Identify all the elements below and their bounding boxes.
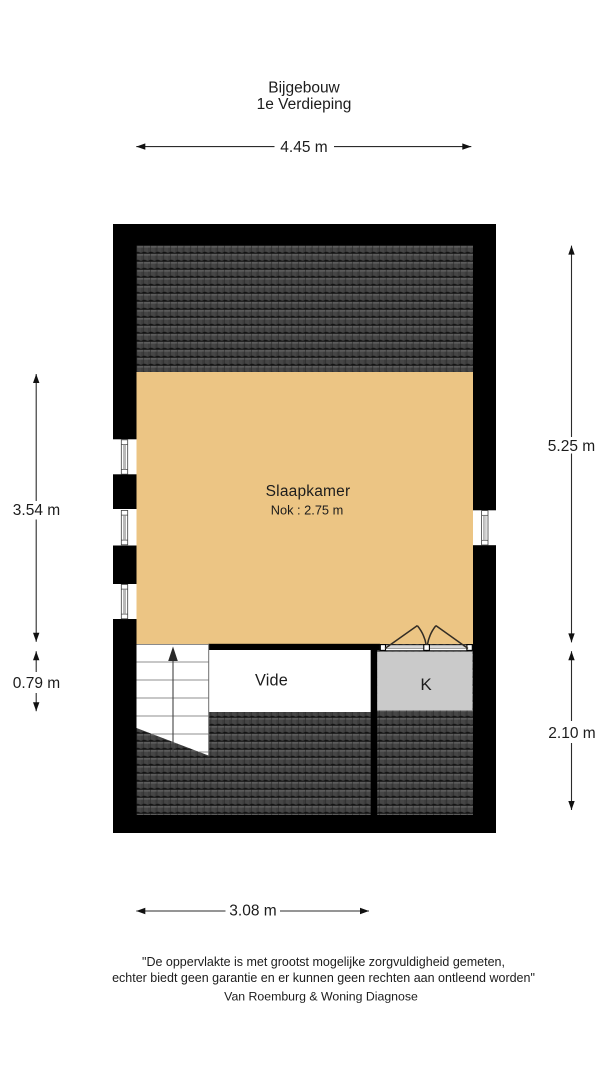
svg-text:echter biedt geen garantie en: echter biedt geen garantie en er kunnen …	[112, 971, 535, 985]
svg-text:2.10 m: 2.10 m	[548, 725, 595, 742]
svg-text:0.79 m: 0.79 m	[13, 675, 60, 692]
svg-text:Slaapkamer: Slaapkamer	[266, 483, 351, 500]
svg-text:Van Roemburg & Woning Diagnose: Van Roemburg & Woning Diagnose	[224, 990, 418, 1004]
svg-text:3.08 m: 3.08 m	[229, 903, 276, 920]
svg-text:3.54 m: 3.54 m	[13, 502, 60, 519]
svg-text:Vide: Vide	[255, 672, 288, 690]
svg-text:K: K	[420, 675, 432, 694]
svg-text:1e Verdieping: 1e Verdieping	[257, 96, 352, 113]
svg-text:"De oppervlakte is met grootst: "De oppervlakte is met grootst mogelijke…	[142, 955, 505, 969]
svg-text:5.25 m: 5.25 m	[548, 438, 595, 455]
svg-text:Nok : 2.75 m: Nok : 2.75 m	[271, 503, 344, 518]
svg-text:4.45 m: 4.45 m	[280, 139, 327, 156]
svg-text:Bijgebouw: Bijgebouw	[268, 80, 340, 97]
